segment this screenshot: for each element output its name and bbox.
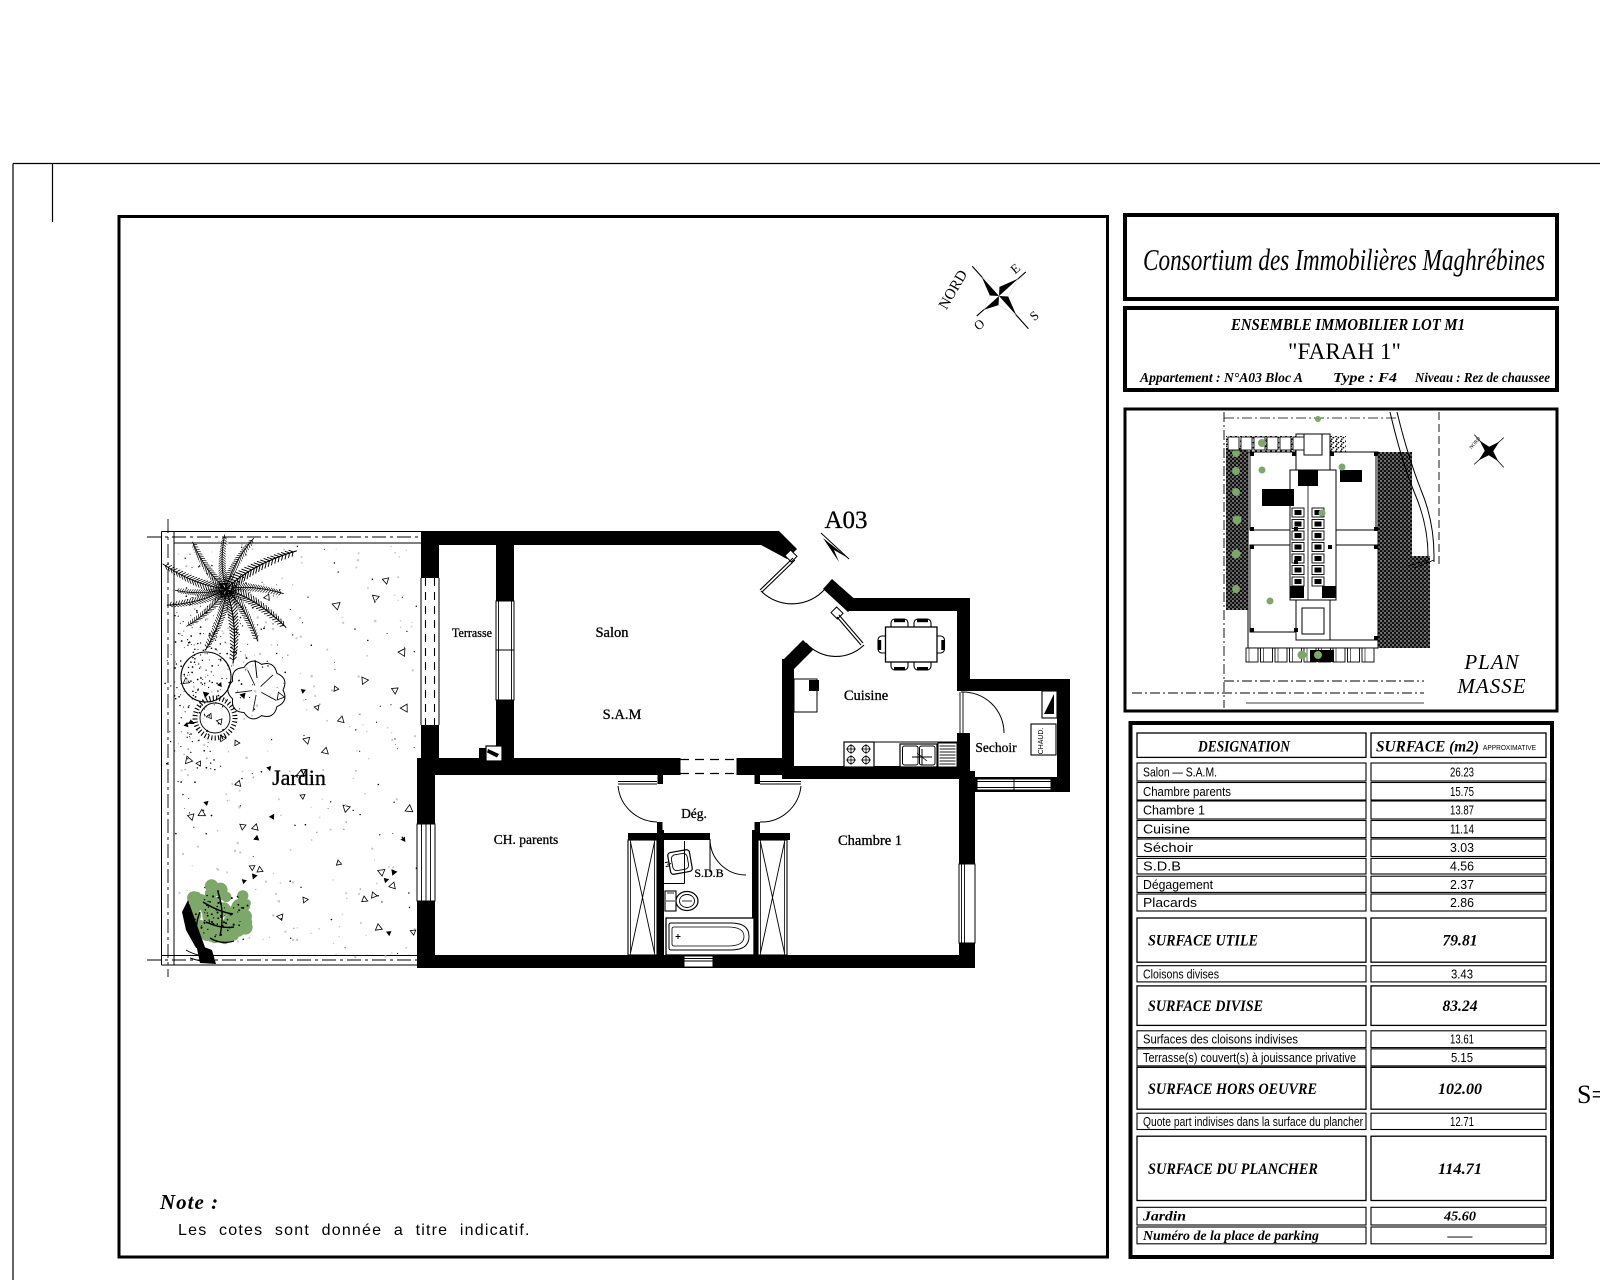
svg-text:DESIGNATION: DESIGNATION	[1197, 739, 1291, 756]
svg-text:12.71: 12.71	[1450, 1114, 1474, 1129]
svg-text:13.87: 13.87	[1450, 803, 1474, 818]
svg-text:——: ——	[1447, 1228, 1473, 1243]
svg-text:Cloisons divises: Cloisons divises	[1143, 966, 1219, 981]
svg-text:5.15: 5.15	[1451, 1050, 1473, 1065]
svg-text:3.43: 3.43	[1451, 966, 1473, 981]
svg-text:Cuisine: Cuisine	[1143, 822, 1190, 837]
svg-text:Chambre 1: Chambre 1	[838, 833, 902, 849]
svg-text:Cuisine: Cuisine	[844, 688, 888, 704]
svg-text:Salon — S.A.M.: Salon — S.A.M.	[1143, 765, 1217, 780]
svg-text:26.23: 26.23	[1450, 765, 1474, 780]
svg-text:45.60: 45.60	[1443, 1209, 1476, 1224]
svg-text:PLAN: PLAN	[1463, 650, 1519, 674]
svg-text:Les cotes sont donnée a t: Les cotes sont donnée a titre indicatif.	[178, 1222, 531, 1239]
svg-text:Terrasse(s) couvert(s) à jo: Terrasse(s) couvert(s) à jouissance priv…	[1143, 1050, 1356, 1065]
svg-text:Chambre 1: Chambre 1	[1143, 803, 1205, 818]
svg-text:Note :: Note :	[159, 1190, 219, 1214]
svg-text:Sechoir: Sechoir	[975, 740, 1017, 755]
svg-text:2.86: 2.86	[1450, 895, 1474, 910]
svg-text:Dég.: Dég.	[681, 806, 707, 821]
svg-text:Type : F4: Type : F4	[1333, 371, 1397, 386]
svg-text:Surfaces des cloisons indiv: Surfaces des cloisons indivises	[1143, 1032, 1298, 1047]
svg-text:Consortium des Immobilières Ma: Consortium des Immobilières Maghrébines	[1143, 242, 1545, 277]
svg-text:S=1: S=1	[1577, 1080, 1600, 1109]
svg-text:S.A.M: S.A.M	[603, 707, 642, 723]
svg-text:S.D.B: S.D.B	[1143, 859, 1181, 874]
svg-text:3.03: 3.03	[1450, 840, 1474, 855]
svg-text:Niveau : Rez de chaussee: Niveau : Rez de chaussee	[1414, 371, 1550, 386]
svg-text:Appartement : N°A03 Bloc A: Appartement : N°A03 Bloc A	[1139, 371, 1303, 386]
svg-text:Jardin: Jardin	[272, 765, 326, 790]
svg-text:SURFACE DIVISE: SURFACE DIVISE	[1148, 998, 1263, 1015]
svg-text:4.56: 4.56	[1450, 859, 1474, 874]
svg-text:Terrasse: Terrasse	[452, 626, 492, 640]
svg-text:83.24: 83.24	[1443, 998, 1478, 1015]
svg-text:APPROXIMATIVE: APPROXIMATIVE	[1483, 743, 1536, 752]
svg-text:"FARAH 1": "FARAH 1"	[1288, 339, 1401, 364]
svg-text:S.D.B: S.D.B	[694, 866, 723, 880]
svg-text:ENSEMBLE IMMOBILIER LOT M1: ENSEMBLE IMMOBILIER LOT M1	[1230, 315, 1465, 334]
svg-text:Dégagement: Dégagement	[1143, 877, 1213, 892]
svg-text:Salon: Salon	[595, 625, 629, 641]
svg-text:CH. parents: CH. parents	[494, 832, 559, 847]
svg-text:13.61: 13.61	[1450, 1032, 1474, 1047]
svg-text:114.71: 114.71	[1438, 1161, 1482, 1178]
svg-text:79.81: 79.81	[1443, 933, 1478, 950]
svg-text:15.75: 15.75	[1450, 784, 1474, 799]
svg-text:Chambre parents: Chambre parents	[1143, 784, 1231, 799]
svg-text:2.37: 2.37	[1450, 877, 1474, 892]
svg-text:SURFACE HORS OEUVRE: SURFACE HORS OEUVRE	[1148, 1081, 1317, 1098]
svg-text:Numéro de la place de par: Numéro de la place de parking	[1142, 1228, 1319, 1243]
svg-text:Quote part indivises dans la s: Quote part indivises dans la surface du …	[1143, 1114, 1364, 1129]
svg-text:Jardin: Jardin	[1142, 1209, 1186, 1224]
svg-text:SURFACE DU PLANCHER: SURFACE DU PLANCHER	[1148, 1161, 1318, 1178]
svg-text:Placards: Placards	[1143, 895, 1198, 910]
svg-text:Séchoir: Séchoir	[1143, 840, 1194, 855]
svg-text:SURFACE (m2): SURFACE (m2)	[1376, 739, 1479, 756]
svg-text:11.14: 11.14	[1450, 822, 1474, 837]
svg-text:SURFACE UTILE: SURFACE UTILE	[1148, 933, 1258, 950]
svg-text:MASSE: MASSE	[1456, 674, 1526, 698]
svg-text:CHAUD.: CHAUD.	[1038, 728, 1045, 755]
svg-text:A03: A03	[824, 507, 867, 534]
svg-text:102.00: 102.00	[1438, 1081, 1482, 1098]
